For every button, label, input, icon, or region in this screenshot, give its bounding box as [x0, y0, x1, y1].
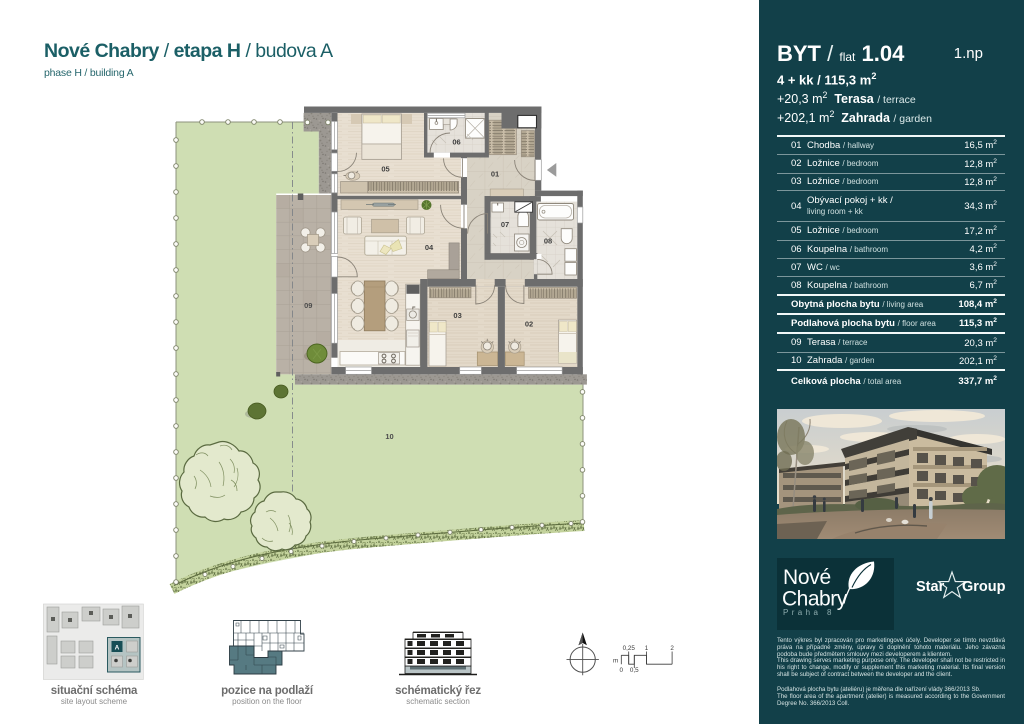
svg-text:Nové: Nové — [783, 566, 831, 589]
svg-text:01: 01 — [491, 170, 499, 179]
svg-text:09: 09 — [304, 301, 312, 310]
svg-text:05: 05 — [381, 165, 389, 174]
svg-text:schematic section: schematic section — [406, 697, 470, 706]
svg-text:Group: Group — [962, 579, 1006, 595]
svg-text:2: 2 — [670, 645, 674, 652]
svg-text:02: 02 — [525, 320, 533, 329]
svg-text:situační schéma: situační schéma — [51, 685, 138, 697]
svg-text:site layout scheme: site layout scheme — [61, 697, 128, 706]
svg-text:A: A — [115, 645, 120, 652]
svg-text:Praha 8: Praha 8 — [783, 608, 835, 617]
svg-text:07: 07 — [501, 220, 509, 229]
svg-text:0,25: 0,25 — [623, 645, 636, 652]
svg-text:0,5: 0,5 — [630, 667, 639, 674]
svg-text:m: m — [613, 657, 618, 664]
svg-text:08: 08 — [544, 237, 552, 246]
svg-text:1: 1 — [645, 645, 649, 652]
svg-text:schématický řez: schématický řez — [395, 685, 481, 697]
svg-text:10: 10 — [385, 432, 393, 441]
svg-text:pozice na podlaží: pozice na podlaží — [221, 685, 314, 697]
svg-text:03: 03 — [453, 311, 461, 320]
svg-text:position on the floor: position on the floor — [232, 697, 302, 706]
svg-text:06: 06 — [452, 138, 460, 147]
svg-text:0: 0 — [620, 667, 624, 674]
svg-text:04: 04 — [425, 243, 434, 252]
